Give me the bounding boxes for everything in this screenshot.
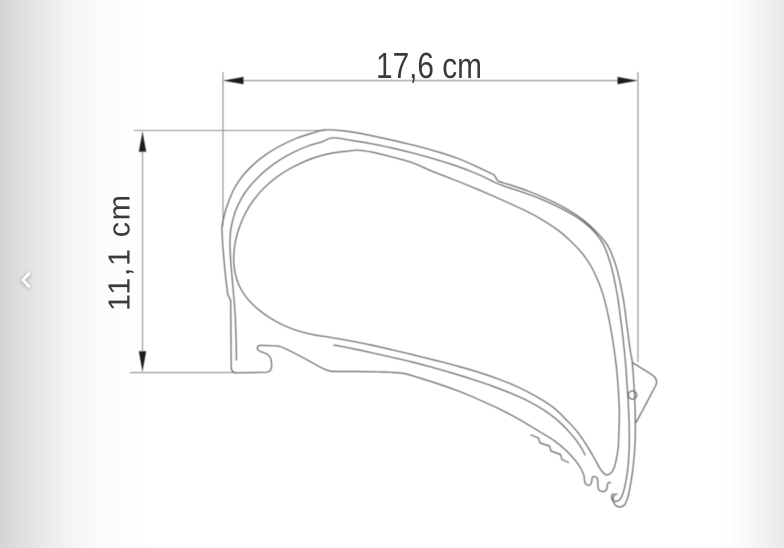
- svg-text:11,1 cm: 11,1 cm: [103, 195, 137, 311]
- svg-text:17,6 cm: 17,6 cm: [376, 45, 482, 86]
